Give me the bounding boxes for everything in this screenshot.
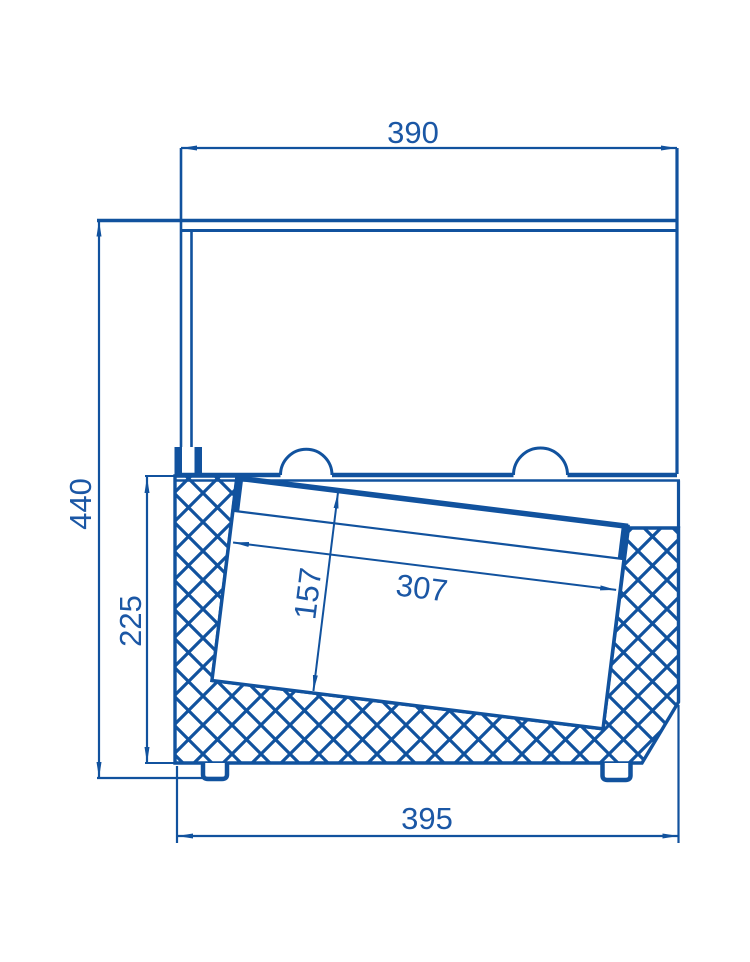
dimension-drawing: 307 157 390 [0,0,750,962]
dim-label-pan-width: 307 [394,567,450,608]
pan-rim-lip-left [236,478,240,511]
technical-drawing-page: 307 157 390 [0,0,750,962]
dim-label-body-height: 225 [113,595,148,647]
dim-label-body-width: 395 [401,801,453,836]
foot-left [203,763,227,779]
dim-label-overall-height: 440 [63,478,98,530]
glass-frame-post-right [195,447,203,476]
hinge-dome-left [281,449,333,475]
pan-rim-lip-right [621,526,625,559]
dim-label-top-width: 390 [387,115,439,150]
glass-frame-post-left [175,447,183,476]
hinge-dome-right [514,448,568,475]
dim-label-pan-depth: 157 [287,566,328,622]
foot-right [603,763,631,780]
